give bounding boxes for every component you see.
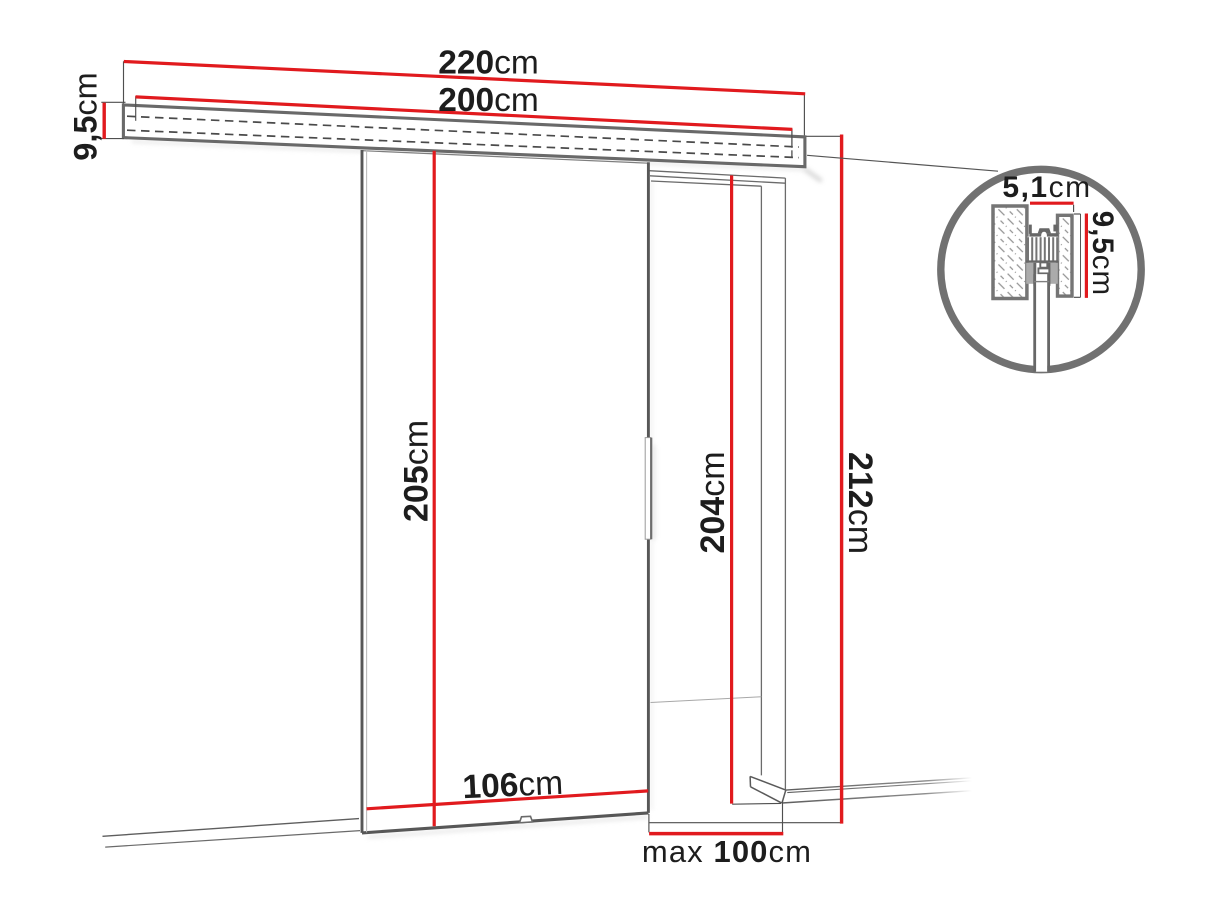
svg-text:204cm: 204cm — [694, 451, 732, 553]
svg-text:205cm: 205cm — [398, 420, 436, 522]
svg-text:9,5cm: 9,5cm — [1086, 211, 1119, 296]
svg-text:220cm: 220cm — [438, 45, 539, 82]
svg-text:106cm: 106cm — [462, 765, 564, 807]
svg-text:9,5cm: 9,5cm — [67, 72, 103, 161]
svg-text:200cm: 200cm — [438, 82, 539, 119]
svg-text:5,1cm: 5,1cm — [1002, 171, 1091, 204]
svg-text:max 100cm: max 100cm — [642, 834, 812, 869]
svg-text:212cm: 212cm — [841, 452, 879, 554]
